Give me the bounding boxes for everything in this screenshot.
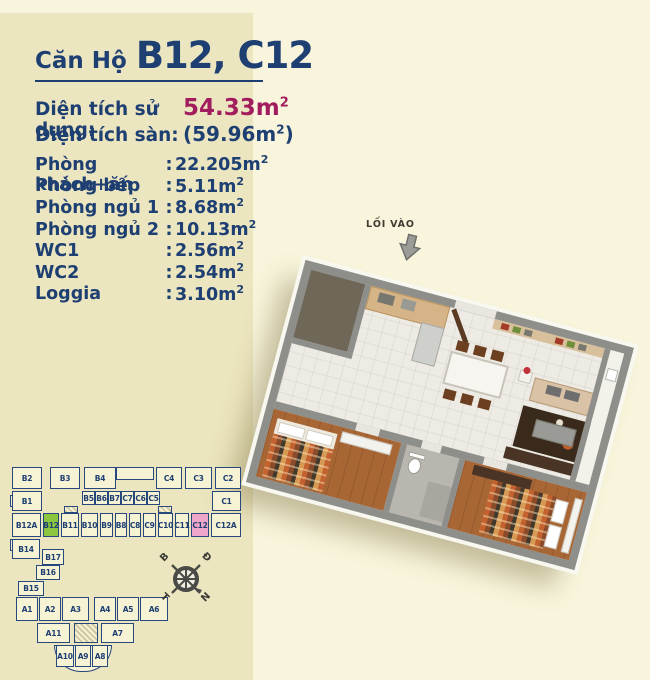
room-value: 5.11m2 [175,175,243,197]
map-unit-a10: A10 [56,645,74,667]
title-prefix: Căn Hộ [35,48,127,74]
map-unit-a5: A5 [117,597,139,621]
room-row: Loggia:3.10m2 [35,283,243,305]
room-value-sup: 2 [236,283,244,296]
room-row: WC1:2.56m2 [35,239,243,261]
room-value-sup: 2 [236,239,244,252]
room-colon: : [163,198,175,218]
room-row: Phòng khách+ăn:22.205m2 [35,153,243,175]
map-unit-a7: A7 [101,623,134,643]
room-colon: : [163,241,175,261]
map-unit-c12: C12 [191,513,209,537]
map-unit-c8: C8 [129,513,141,537]
map-unit-c4: C4 [156,467,182,489]
floorplan-3d [246,260,634,570]
map-unit-c1: C1 [212,491,241,511]
map-unit-b2: B2 [12,467,42,489]
room-area-list: Phòng khách+ăn:22.205m2Phòng bếp:5.11m2P… [35,153,243,304]
area-summary: Diện tích sử dụng: 54.33m2 Diện tích sàn… [35,95,294,149]
map-unit-a2: A2 [39,597,61,621]
room-value-sup: 2 [261,153,269,166]
map-unit-c7: C7 [121,491,134,505]
room-value-sup: 2 [236,175,244,188]
entrance-label: LỐI VÀO [366,219,415,230]
map-unit-c6: C6 [134,491,147,505]
room-colon: : [163,263,175,283]
room-label: Phòng bếp [35,176,163,196]
map-unit-a3: A3 [62,597,89,621]
room-row: Phòng ngủ 2:10.13m2 [35,218,243,240]
map-unit-c5: C5 [147,491,160,505]
map-unit-a1: A1 [16,597,38,621]
map-unit-b15: B15 [18,581,44,596]
room-colon: : [163,284,175,304]
map-unit-b1: B1 [12,491,42,511]
header: Căn HộB12, C12 [35,34,275,82]
map-unit-a8: A8 [92,645,108,667]
map-unit-b7: B7 [108,491,121,505]
map-unit-b10: B10 [81,513,98,537]
map-unit-a11: A11 [37,623,70,643]
map-unit-b17: B17 [42,549,64,565]
usable-area-row: Diện tích sử dụng: 54.33m2 [35,95,294,122]
page-title: Căn HộB12, C12 [35,34,275,77]
room-value: 10.13m2 [175,218,243,240]
map-hatch-block [64,506,78,513]
map-unit-c2: C2 [215,467,241,489]
room-value-sup: 2 [236,196,244,209]
map-unit-b14: B14 [12,539,40,559]
map-unit-a4: A4 [94,597,116,621]
floor-area-row: Diện tích sàn: (59.96m2) [35,122,294,149]
room-value: 2.56m2 [175,239,243,261]
map-unit-c11: C11 [175,513,189,537]
room-row: WC2:2.54m2 [35,261,243,283]
title-main: B12, C12 [136,34,313,77]
map-hatch-block [74,623,98,643]
room-value-sup: 2 [236,261,244,274]
map-unit-c10: C10 [158,513,173,537]
room-value: 2.54m2 [175,261,243,283]
room-label: Phòng ngủ 2 [35,220,163,240]
map-unit-c12a: C12A [211,513,241,537]
map-unit-b6: B6 [95,491,108,505]
room-value-sup: 2 [249,218,257,231]
map-unit-b12a: B12A [12,513,41,537]
map-unit-b9: B9 [100,513,113,537]
map-unit-b4: B4 [84,467,116,489]
map-unit-b11: B11 [61,513,79,537]
room-colon: : [163,155,175,175]
map-unit-b16: B16 [36,565,60,580]
room-row: Phòng bếp:5.11m2 [35,175,243,197]
room-label: Phòng ngủ 1 [35,198,163,218]
room-value: 22.205m2 [175,153,243,175]
map-plain-block [116,467,154,480]
room-value: 3.10m2 [175,283,243,305]
map-unit-c9: C9 [143,513,156,537]
map-unit-b8: B8 [115,513,127,537]
map-unit-b3: B3 [50,467,80,489]
room-label: WC2 [35,263,163,283]
floor-area-label: Diện tích sàn: [35,125,183,146]
room-row: Phòng ngủ 1:8.68m2 [35,196,243,218]
map-unit-c3: C3 [185,467,212,489]
entrance-arrow-icon [393,231,426,268]
compass-rose: B Đ T N [158,550,214,608]
room-colon: : [163,176,175,196]
map-unit-b12: B12 [43,513,59,537]
floor-area-value: (59.96m2) [183,122,294,146]
room-colon: : [163,220,175,240]
usable-area-value: 54.33m2 [183,95,289,121]
title-underline [35,80,263,82]
map-unit-b5: B5 [82,491,95,505]
room-label: Loggia [35,284,163,304]
room-label: WC1 [35,241,163,261]
map-hatch-block [158,506,172,513]
map-unit-a9: A9 [75,645,91,667]
room-value: 8.68m2 [175,196,243,218]
